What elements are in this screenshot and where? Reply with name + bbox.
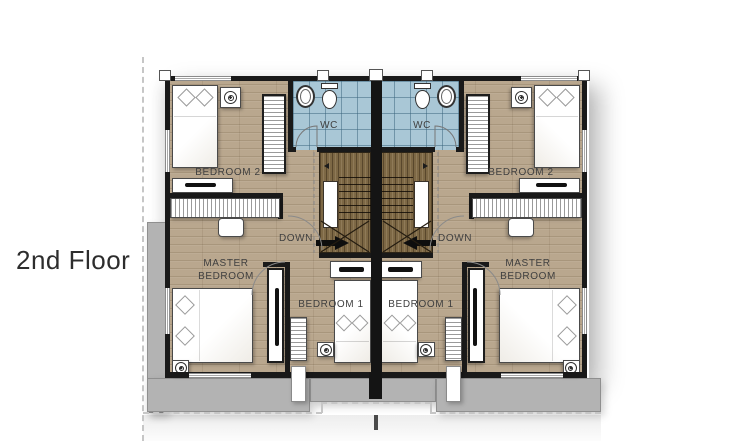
column-marker: [317, 70, 329, 81]
master-label-line1: MASTER: [477, 257, 579, 270]
room-label-bedroom2-left: BEDROOM 2: [172, 166, 284, 179]
room-label-wc-right: WC: [402, 119, 442, 132]
stair-cut-line: [383, 221, 431, 252]
column-marker-center: [369, 69, 383, 81]
room-label-bedroom1-left: BEDROOM 1: [294, 298, 368, 311]
party-wall-stub: [369, 372, 382, 399]
ground-band: [143, 415, 601, 441]
stair-cut-line: [321, 221, 369, 252]
master-label-line2: BEDROOM: [175, 270, 277, 283]
floor-plan-canvas: 2nd Floor BEDROOM 2 BEDROOM 2 WC WC DOWN…: [0, 0, 747, 441]
floor-title: 2nd Floor: [16, 245, 132, 276]
down-label-left: DOWN: [269, 232, 313, 245]
boundary-dash-bottom-left: [143, 412, 322, 414]
room-label-wc-left: WC: [309, 119, 349, 132]
party-wall: [371, 76, 382, 372]
column-marker: [578, 70, 590, 81]
room-label-bedroom1-right: BEDROOM 1: [384, 298, 458, 311]
master-label-line2: BEDROOM: [477, 270, 579, 283]
master-label-line1: MASTER: [175, 257, 277, 270]
gate-tick: [374, 415, 378, 430]
roof-apron-bottom-left: [147, 378, 310, 412]
room-label-master-right: MASTER BEDROOM: [477, 257, 579, 283]
utility-niche-left: [291, 366, 306, 402]
room-label-master-left: MASTER BEDROOM: [175, 257, 277, 283]
boundary-dash-bottom-right: [430, 412, 601, 414]
property-line-left: [142, 57, 144, 441]
column-marker: [159, 70, 171, 81]
utility-niche-right: [446, 366, 461, 402]
boundary-dash-bottom-center: [321, 402, 431, 404]
column-marker: [421, 70, 433, 81]
room-label-bedroom2-right: BEDROOM 2: [465, 166, 577, 179]
down-label-right: DOWN: [438, 232, 482, 245]
